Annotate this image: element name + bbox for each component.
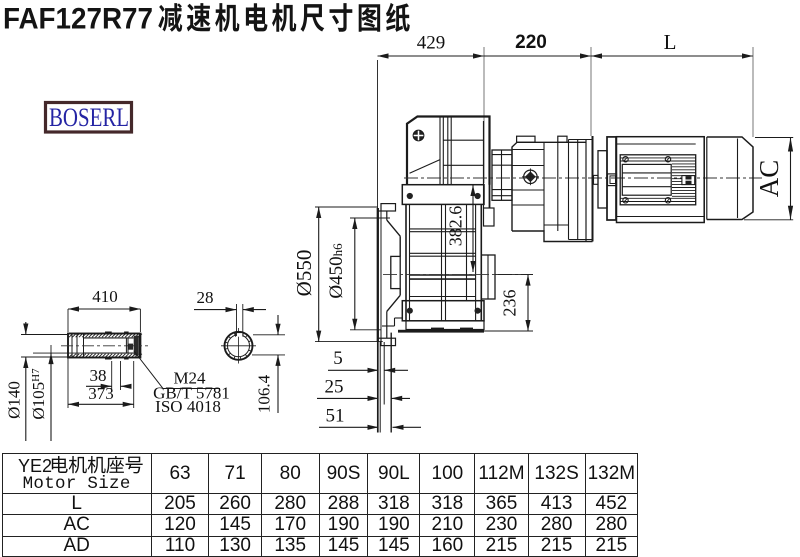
svg-text:51: 51 (326, 406, 345, 427)
svg-text:429: 429 (417, 33, 446, 54)
svg-text:AC: AC (754, 160, 784, 198)
svg-text:5: 5 (333, 348, 343, 369)
svg-text:Ø140: Ø140 (5, 381, 24, 419)
svg-text:Ø550: Ø550 (292, 250, 316, 297)
svg-text:382.6: 382.6 (446, 206, 466, 247)
svg-text:25: 25 (325, 377, 344, 398)
svg-text:220: 220 (515, 32, 547, 53)
svg-text:L: L (664, 30, 677, 54)
svg-text:106.4: 106.4 (255, 374, 274, 413)
svg-text:FAF127R77: FAF127R77 (3, 3, 153, 36)
svg-text:BOSERL: BOSERL (49, 102, 129, 132)
svg-text:373: 373 (88, 384, 114, 403)
svg-text:38: 38 (90, 366, 107, 385)
svg-text:410: 410 (92, 287, 118, 306)
svg-text:Ø105H7: Ø105H7 (29, 368, 48, 420)
svg-text:236: 236 (500, 290, 520, 317)
svg-text:YE2: YE2 (18, 456, 52, 476)
svg-text:ISO 4018: ISO 4018 (155, 397, 221, 416)
svg-text:Ø450h6: Ø450h6 (326, 243, 347, 299)
svg-text:28: 28 (197, 288, 214, 307)
